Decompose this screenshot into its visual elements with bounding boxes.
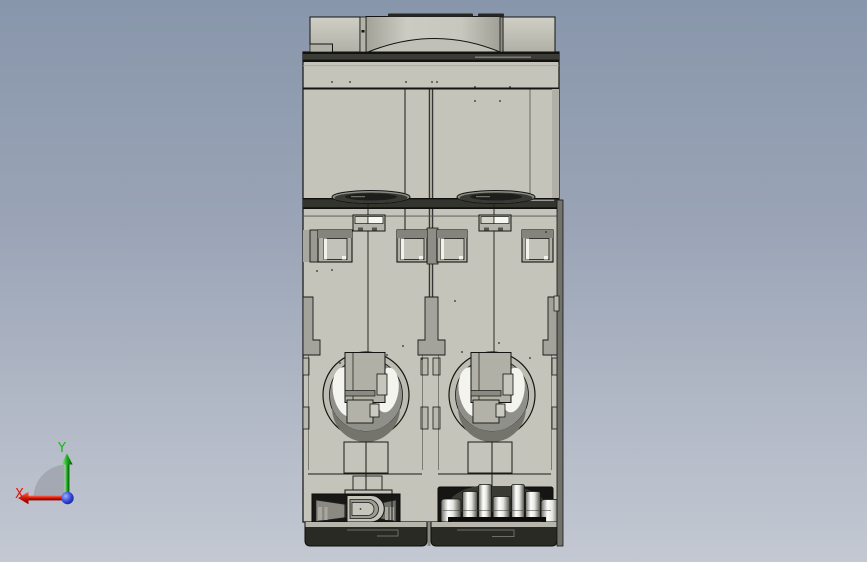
triad-quarter-disc (34, 465, 68, 499)
breaker-model[interactable] (302, 13, 564, 548)
orientation-triad: X Y (6, 436, 102, 532)
3d-viewport[interactable]: X Y (0, 0, 867, 562)
terminal-screw-right[interactable] (457, 191, 535, 204)
x-axis-label: X (15, 487, 24, 502)
y-axis-label: Y (57, 441, 66, 456)
terminal-screw-left[interactable] (332, 191, 410, 204)
contact-spring-right[interactable] (438, 485, 560, 525)
z-axis-ball[interactable] (61, 492, 73, 504)
housing[interactable] (303, 52, 559, 522)
toggle-handle[interactable] (310, 14, 555, 53)
din-rail-base[interactable] (305, 522, 557, 546)
